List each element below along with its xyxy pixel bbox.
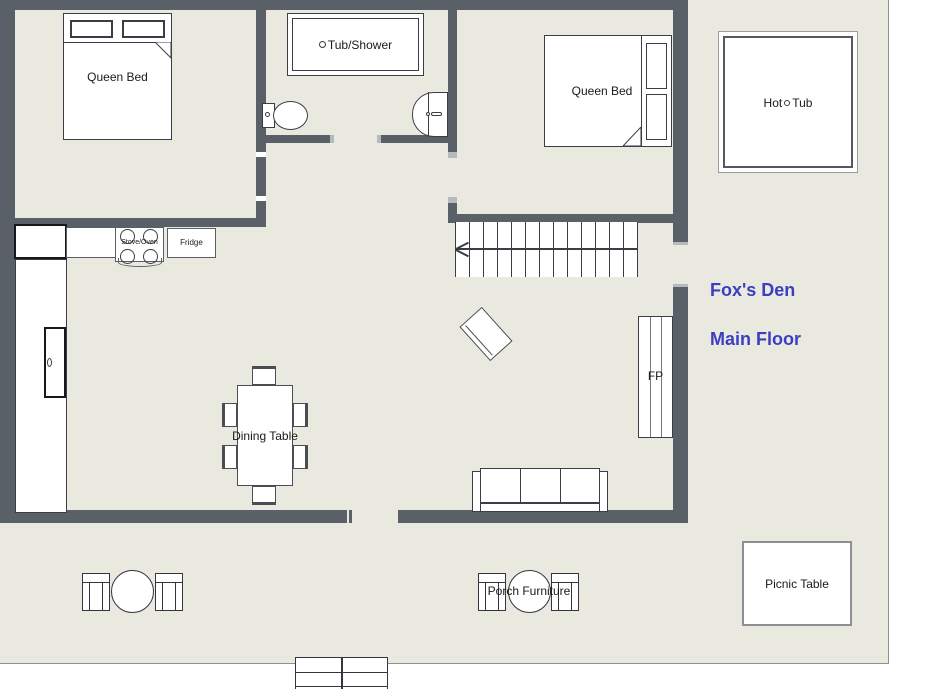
- door-jamb: [349, 510, 352, 523]
- step-line: [295, 672, 388, 673]
- hot-tub-label: Hot Tub: [718, 95, 858, 110]
- hot-tub-jet-icon: [784, 100, 790, 106]
- floor-label: Main Floor: [710, 329, 801, 350]
- bed-label: Queen Bed: [63, 69, 172, 84]
- porch-furniture-label: Porch Furniture: [469, 583, 589, 598]
- sofa-base: [480, 503, 600, 512]
- porch-chair: [155, 573, 183, 611]
- dining-chair: [252, 366, 276, 385]
- toilet-flush-icon: [265, 112, 270, 117]
- fireplace-label: FP: [638, 368, 673, 383]
- tub-shower-inner: Tub/Shower: [292, 18, 419, 71]
- pillow: [122, 20, 165, 38]
- kitchen-faucet-icon: [47, 358, 52, 367]
- wall-left: [0, 0, 15, 523]
- kitchen-counter: [66, 227, 116, 258]
- bed-label: Queen Bed: [550, 83, 654, 98]
- dining-chair: [293, 445, 308, 469]
- door-jamb: [330, 135, 334, 143]
- dining-table-label: Dining Table: [237, 428, 293, 443]
- tub-shower-label: Tub/Shower: [328, 38, 392, 52]
- floor-plan: Queen Bed Tub/Shower Queen Bed FP Stove/…: [0, 0, 935, 689]
- dining-chair: [222, 445, 237, 469]
- steps-divider: [341, 657, 343, 689]
- fridge-label: Fridge: [167, 237, 216, 248]
- wall-bedroom-right-upper: [448, 10, 457, 152]
- porch-chair: [82, 573, 110, 611]
- bathroom-sink: [412, 92, 448, 137]
- wall-bathroom-left: [256, 135, 330, 143]
- pillow: [646, 94, 667, 140]
- kitchen-counter-corner: [14, 224, 67, 259]
- picnic-table: Picnic Table: [742, 541, 852, 626]
- dining-chair: [252, 486, 276, 505]
- window-jamb: [673, 242, 688, 245]
- plan-title: Fox's Den: [710, 280, 795, 301]
- door-jamb: [448, 152, 457, 158]
- sofa-cushion-line: [520, 468, 521, 503]
- pillow: [70, 20, 113, 38]
- dining-chair: [222, 403, 237, 427]
- window-jamb: [673, 284, 688, 287]
- wall-right-lower: [673, 287, 688, 523]
- oven-door-arc: [118, 258, 162, 267]
- sink-faucet-icon: [431, 112, 442, 116]
- sofa-cushion-line: [560, 468, 561, 503]
- sofa-cushions: [480, 468, 600, 503]
- step-line: [295, 686, 388, 687]
- sheet-fold: [623, 127, 642, 147]
- wall-top: [0, 0, 688, 10]
- toilet-bowl: [273, 101, 308, 130]
- sink-drain-icon: [426, 112, 430, 116]
- door-notch: [256, 152, 266, 157]
- porch-table: [111, 570, 154, 613]
- stairs-center-line: [455, 248, 638, 250]
- door-notch: [256, 196, 266, 201]
- tub-drain-icon: [319, 41, 326, 48]
- sheet-fold: [155, 42, 172, 59]
- sofa-armrest: [599, 471, 608, 512]
- wall-right-upper: [673, 0, 688, 242]
- stove-label: Stove/Oven: [110, 238, 169, 247]
- dining-chair: [293, 403, 308, 427]
